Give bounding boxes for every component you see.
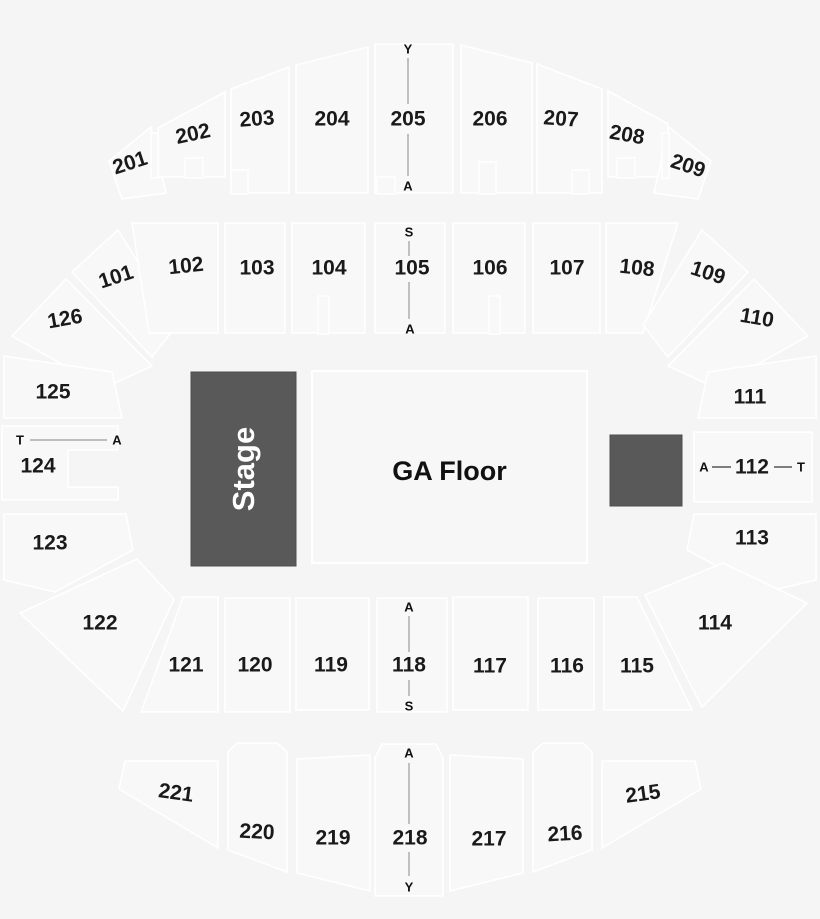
section-label-216: 216 [547, 822, 583, 847]
section-label-102: 102 [167, 253, 204, 280]
row-marker-A: A [404, 746, 414, 761]
row-marker-S: S [405, 699, 414, 714]
section-label-221: 221 [157, 779, 195, 807]
section-label-207: 207 [543, 106, 580, 131]
section-label-118: 118 [392, 654, 426, 677]
row-marker-T: T [797, 460, 805, 475]
vomitory-notch [318, 296, 329, 334]
section-label-103: 103 [239, 257, 274, 280]
section-220[interactable] [228, 743, 287, 872]
section-label-203: 203 [239, 106, 276, 131]
arena-seating-map: 2012022032042052062072082091011021031041… [0, 0, 820, 919]
row-marker-A: A [699, 460, 709, 475]
ga-floor-label: GA Floor [392, 456, 507, 486]
section-label-122: 122 [82, 612, 117, 635]
section-label-117: 117 [473, 655, 507, 678]
section-label-119: 119 [314, 654, 348, 677]
section-label-217: 217 [471, 828, 506, 851]
section-216[interactable] [533, 743, 592, 872]
section-label-215: 215 [624, 780, 662, 808]
ga-floor-section[interactable]: GA Floor [312, 371, 587, 563]
dark-riser-block [610, 435, 682, 506]
row-marker-A: A [112, 433, 122, 448]
row-marker-Y: Y [404, 42, 413, 57]
vomitory-notch [185, 158, 203, 178]
section-label-218: 218 [392, 827, 427, 850]
section-label-204: 204 [314, 108, 349, 131]
section-label-124: 124 [20, 455, 55, 478]
section-217[interactable] [450, 755, 523, 891]
vomitory-notch [572, 170, 589, 194]
vomitory-notch [479, 162, 496, 194]
section-label-112: 112 [735, 456, 769, 479]
section-label-106: 106 [472, 257, 507, 280]
row-marker-A: A [405, 322, 415, 337]
row-marker-A: A [403, 179, 413, 194]
vomitory-notch [231, 170, 248, 194]
section-label-205: 205 [390, 108, 425, 131]
section-label-108: 108 [618, 255, 656, 282]
row-marker-S: S [405, 225, 414, 240]
section-label-116: 116 [550, 655, 584, 678]
section-label-111: 111 [734, 386, 767, 409]
vomitory-notch [617, 158, 635, 178]
section-219[interactable] [297, 755, 370, 891]
vomitory-notch [151, 133, 158, 178]
vomitory-notch [377, 177, 395, 194]
section-label-120: 120 [237, 654, 272, 677]
section-label-113: 113 [735, 527, 769, 550]
section-label-114: 114 [698, 612, 732, 635]
stage-block: Stage [191, 372, 296, 566]
row-marker-T: T [16, 433, 24, 448]
section-label-219: 219 [315, 827, 350, 850]
section-label-121: 121 [168, 654, 203, 677]
section-label-105: 105 [394, 257, 429, 280]
vomitory-notch [489, 296, 500, 334]
stage-label: Stage [226, 427, 261, 511]
section-117[interactable] [453, 597, 528, 710]
section-label-107: 107 [549, 257, 584, 280]
section-label-125: 125 [35, 381, 70, 404]
row-marker-Y: Y [405, 880, 414, 895]
row-marker-A: A [404, 600, 414, 615]
section-label-104: 104 [311, 257, 346, 280]
section-label-220: 220 [239, 820, 275, 845]
vomitory-notch [662, 133, 669, 178]
section-label-123: 123 [32, 532, 67, 555]
section-label-115: 115 [620, 655, 654, 678]
section-label-206: 206 [472, 108, 507, 131]
